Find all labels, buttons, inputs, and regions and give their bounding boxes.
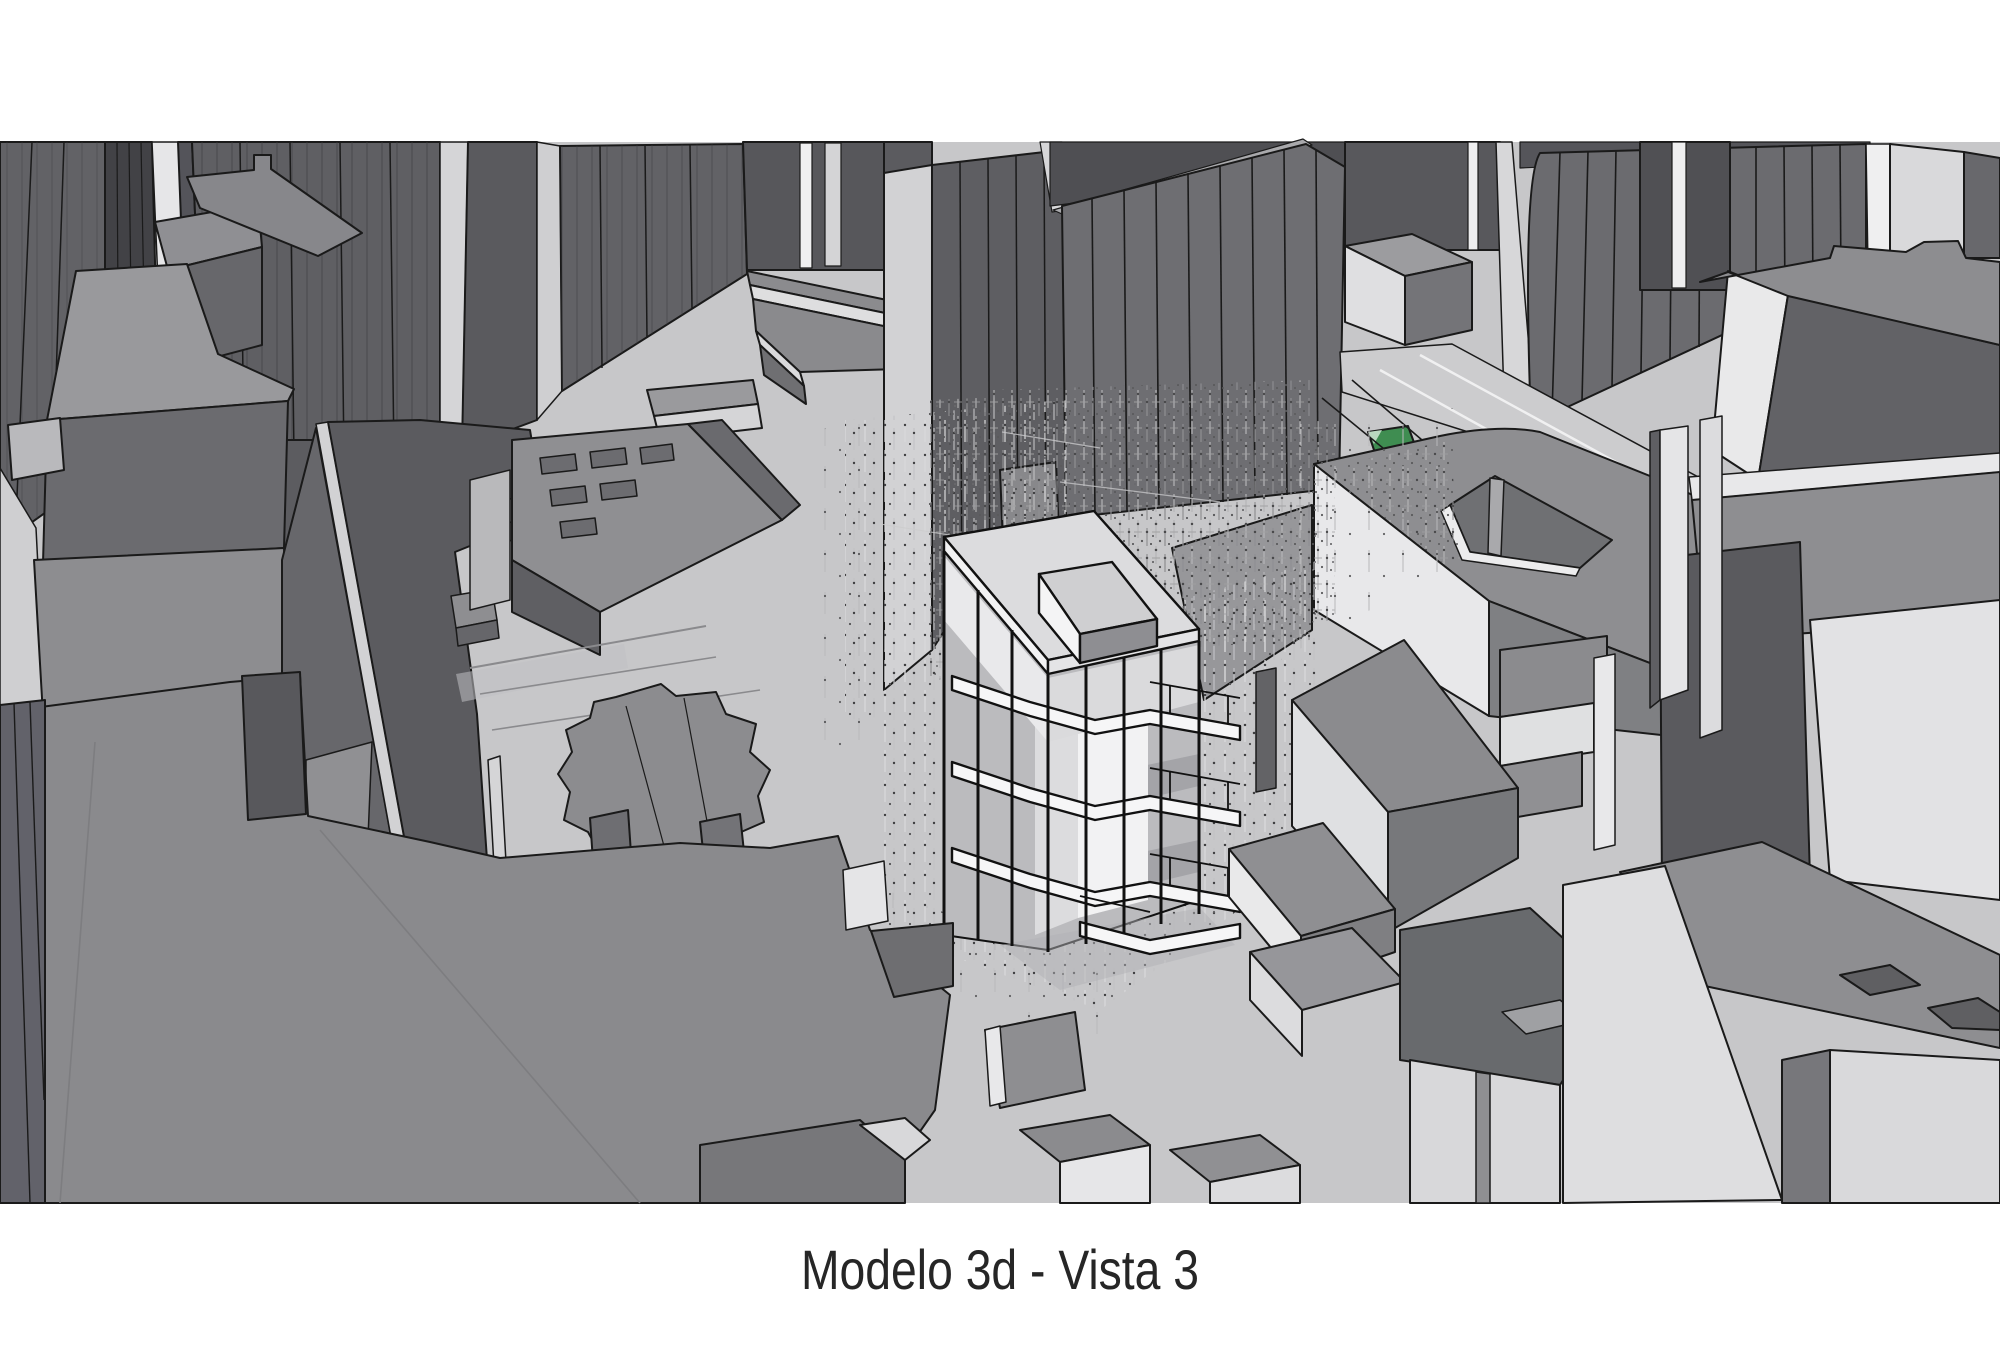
svg-text:Modelo 3d - Vista 3: Modelo 3d - Vista 3 (801, 1238, 1199, 1301)
